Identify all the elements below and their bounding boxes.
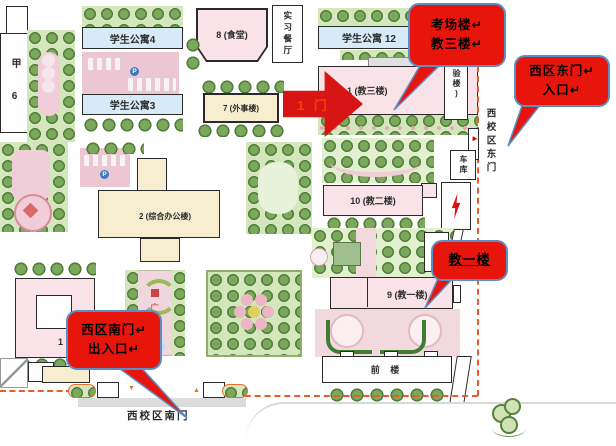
building-admin-north bbox=[137, 158, 167, 191]
canteen-label: 8 (食堂) bbox=[216, 28, 248, 41]
garden-jia6-shrub-2 bbox=[42, 67, 55, 80]
parking-p-icon-admin: P bbox=[100, 170, 109, 179]
student-apartment-4-label: 学生公寓4 bbox=[110, 31, 156, 46]
building-jia6-label: 甲 6 bbox=[9, 58, 19, 108]
hedge-above-apartment4 bbox=[82, 6, 183, 27]
practice-restaurant-label: 实习餐厅 bbox=[283, 11, 292, 57]
flower-garden-center bbox=[248, 306, 260, 318]
trees-above-foreign-affairs bbox=[200, 78, 284, 93]
teaching-2-label: 10 (教二楼) bbox=[350, 194, 396, 207]
garden-jia6-shrub-3 bbox=[42, 80, 55, 93]
teach-one-callout-line1: 教一楼 bbox=[448, 250, 490, 270]
building-student-apartment-3: 学生公寓3 bbox=[82, 94, 183, 115]
garden-pond-teaching-1 bbox=[333, 242, 361, 266]
parked-cars-row-1 bbox=[88, 58, 122, 70]
teaching-1-divider bbox=[367, 278, 368, 307]
road-curve-southeast bbox=[246, 402, 616, 440]
teach-one-callout: 教一楼 bbox=[431, 240, 508, 281]
courtyard-hedge-east bbox=[380, 320, 426, 354]
east-gate-vertical-text: 西校区东门 bbox=[485, 108, 495, 181]
south-boundary-dashed-east bbox=[225, 395, 478, 397]
corner-building bbox=[6, 6, 28, 34]
east-gate-vertical-label: 西校区东门 bbox=[485, 108, 495, 176]
parked-cars-admin bbox=[84, 155, 126, 166]
trees-above-admin bbox=[84, 140, 144, 154]
student-apartment-12-label: 学生公寓 12 bbox=[342, 30, 396, 45]
front-building-label: 前 楼 bbox=[371, 363, 404, 376]
garden-east-of-admin-path bbox=[258, 162, 298, 214]
admin-label: 2 (综合办公楼) bbox=[139, 211, 191, 222]
exam-building-callout: 考场楼↵ 教三楼↵ bbox=[408, 3, 506, 67]
trees-above-building-1 bbox=[12, 260, 96, 276]
trees-below-foreign-affairs bbox=[196, 122, 284, 137]
annex-slanted-building bbox=[0, 358, 28, 388]
foreign-affairs-label: 7 (外事楼) bbox=[223, 103, 259, 114]
plaza-hedge-right bbox=[172, 270, 185, 356]
parking-p-letter-admin: P bbox=[102, 171, 106, 178]
building-admin-main: 2 (综合办公楼) bbox=[98, 190, 220, 238]
parked-cars-row-2 bbox=[128, 78, 176, 91]
east-gate-callout: 西区东门↵ 入口↵ bbox=[514, 55, 610, 107]
east-boundary-dashed-line bbox=[477, 56, 479, 396]
exam-callout-line2: 教三楼↵ bbox=[431, 35, 483, 54]
garden-above-teaching-2-path bbox=[330, 148, 422, 177]
plaza-center-monument bbox=[151, 289, 159, 297]
building-foreign-affairs: 7 (外事楼) bbox=[203, 93, 279, 123]
building-practice-restaurant: 实习餐厅 bbox=[272, 5, 303, 63]
garage-label: 车库 bbox=[459, 155, 467, 175]
hedge-above-apartment12 bbox=[318, 8, 418, 26]
exam-callout-line1: 考场楼↵ bbox=[431, 16, 483, 35]
east-gate-callout-line1: 西区东门↵ bbox=[529, 62, 594, 81]
gate-bush-east bbox=[222, 384, 248, 398]
lightning-icon bbox=[450, 193, 463, 219]
campus-map: 甲 6 学生公寓4 P 学生公寓3 8 (食堂) 实习餐厅 7 (外事楼) 学生… bbox=[0, 0, 616, 446]
gate1-arrow-label: 1 门 bbox=[297, 95, 330, 114]
south-boundary-dashed-west bbox=[0, 390, 72, 392]
building-transformer bbox=[441, 182, 471, 230]
building-garage: 车库 bbox=[450, 150, 476, 180]
building-student-apartment-4: 学生公寓4 bbox=[82, 27, 183, 49]
parking-p-letter: P bbox=[132, 68, 136, 75]
building-front: 前 楼 bbox=[322, 356, 452, 383]
building-canteen-outline: 8 (食堂) bbox=[196, 8, 268, 62]
south-gate-callout: 西区南门↵ 出入口↵ bbox=[66, 310, 162, 370]
courtyard-hedge-west bbox=[326, 320, 372, 354]
garden-jia6-shrub-1 bbox=[42, 54, 55, 67]
map-emblem-leaf-2 bbox=[504, 398, 521, 415]
building-student-apartment-12: 学生公寓 12 bbox=[318, 26, 420, 49]
garden-round-planter bbox=[310, 248, 328, 266]
building-teaching-2: 10 (教二楼) bbox=[323, 185, 423, 216]
south-gate-callout-line1: 西区南门↵ bbox=[81, 321, 146, 340]
south-gate-callout-line2: 出入口↵ bbox=[88, 340, 140, 359]
building-admin-south bbox=[140, 238, 180, 262]
student-apartment-3-label: 学生公寓3 bbox=[110, 97, 156, 112]
building-jia6: 甲 6 bbox=[0, 33, 28, 133]
east-gate-marker-icon: ► bbox=[471, 134, 479, 143]
trees-below-apartment3 bbox=[82, 116, 183, 134]
east-gate-callout-line2: 入口↵ bbox=[543, 81, 581, 100]
gate-bush-west bbox=[68, 384, 96, 398]
map-emblem-arc bbox=[492, 420, 526, 437]
teaching-2-annex bbox=[421, 183, 437, 198]
building-canteen: 8 (食堂) bbox=[198, 10, 267, 61]
teaching-3-label: 1 (教三楼) bbox=[347, 84, 388, 97]
parking-p-icon: P bbox=[130, 67, 139, 76]
garden-west-plaza-path bbox=[12, 150, 50, 200]
trees-left-of-canteen bbox=[184, 36, 202, 72]
